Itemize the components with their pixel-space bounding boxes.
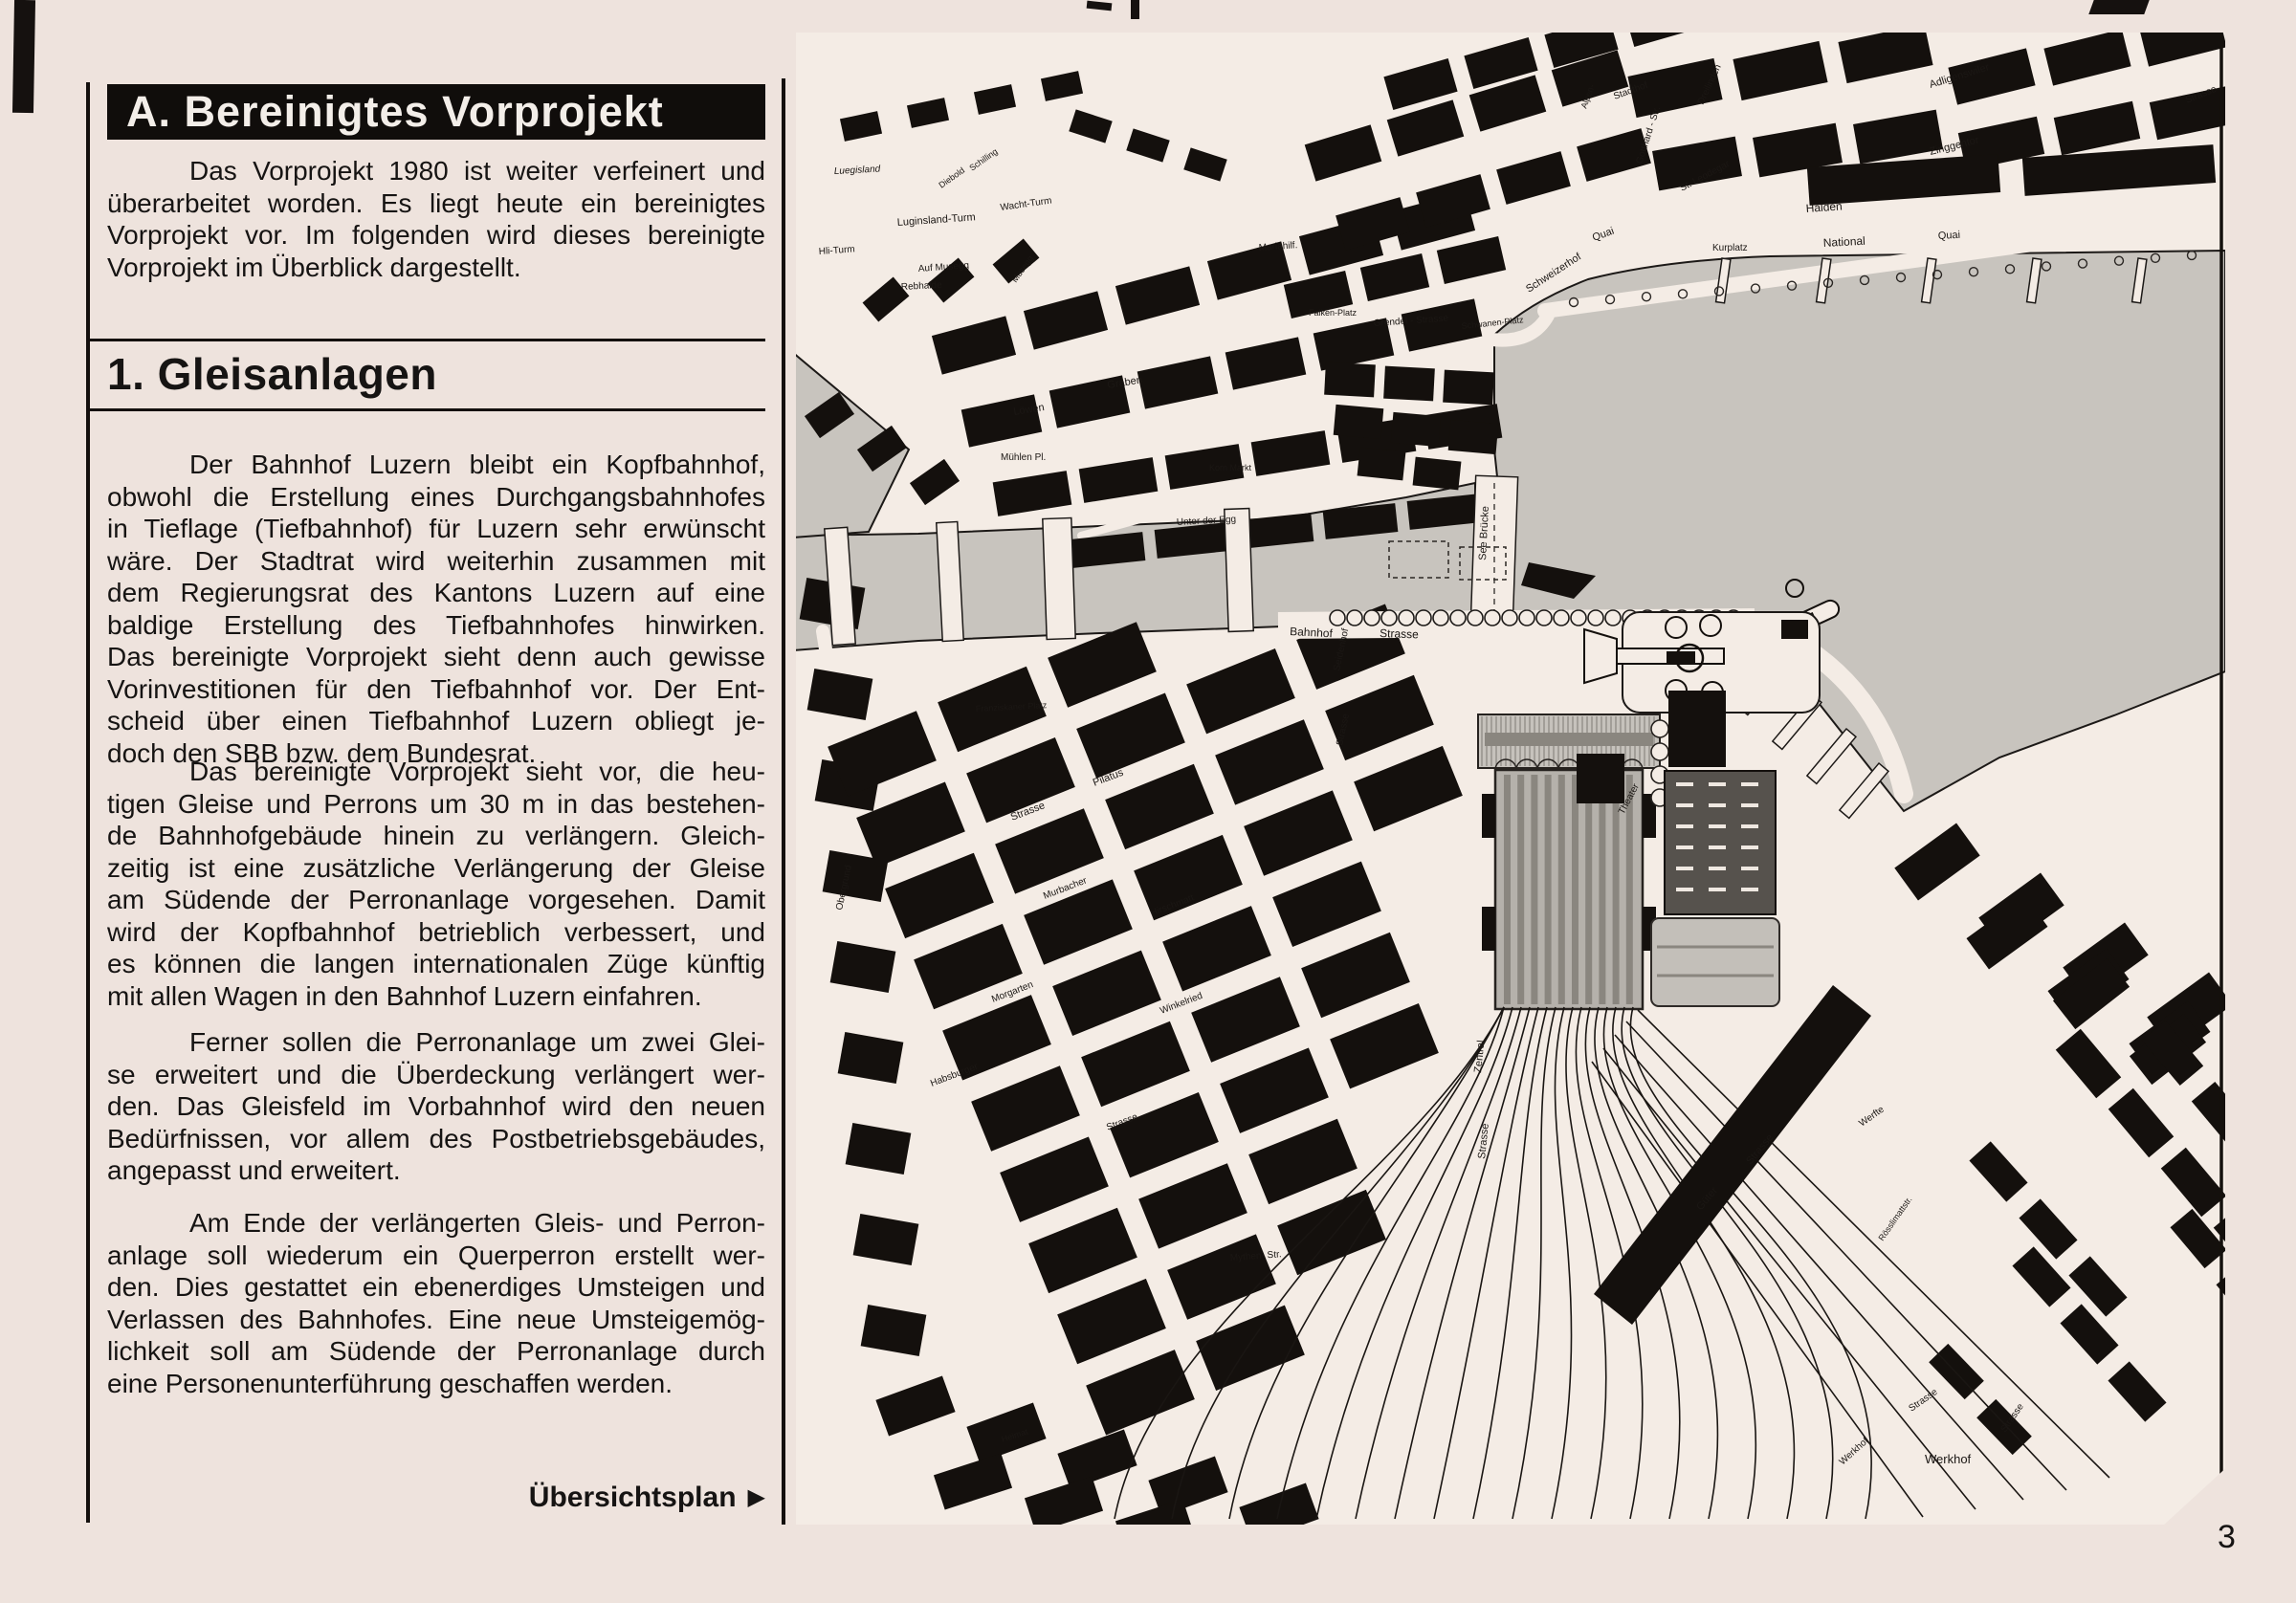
map-label: Quai — [1938, 230, 1961, 242]
page-root: { "page": { "number": "3" }, "colors": {… — [0, 0, 2296, 1603]
map-label: Mühlen Pl. — [1001, 452, 1046, 463]
map-label: Korn Markt — [1209, 463, 1252, 472]
map-label: Bahnhof — [1290, 625, 1334, 640]
city-map: LuegislandLuginsland-TurmWacht-TurmHli-T… — [0, 0, 2296, 1603]
map-label: Werkhof — [1925, 1452, 1972, 1466]
map-label: Falken-Platz — [1309, 308, 1358, 318]
map-content: LuegislandLuginsland-TurmWacht-TurmHli-T… — [792, 0, 2296, 1602]
map-label: National — [1822, 234, 1865, 250]
map-label: Kurplatz — [1712, 243, 1748, 253]
map-label: Strasse — [1380, 626, 1419, 641]
map-label: Halden — [1805, 199, 1843, 215]
map-label: Rebhalde — [901, 280, 943, 293]
